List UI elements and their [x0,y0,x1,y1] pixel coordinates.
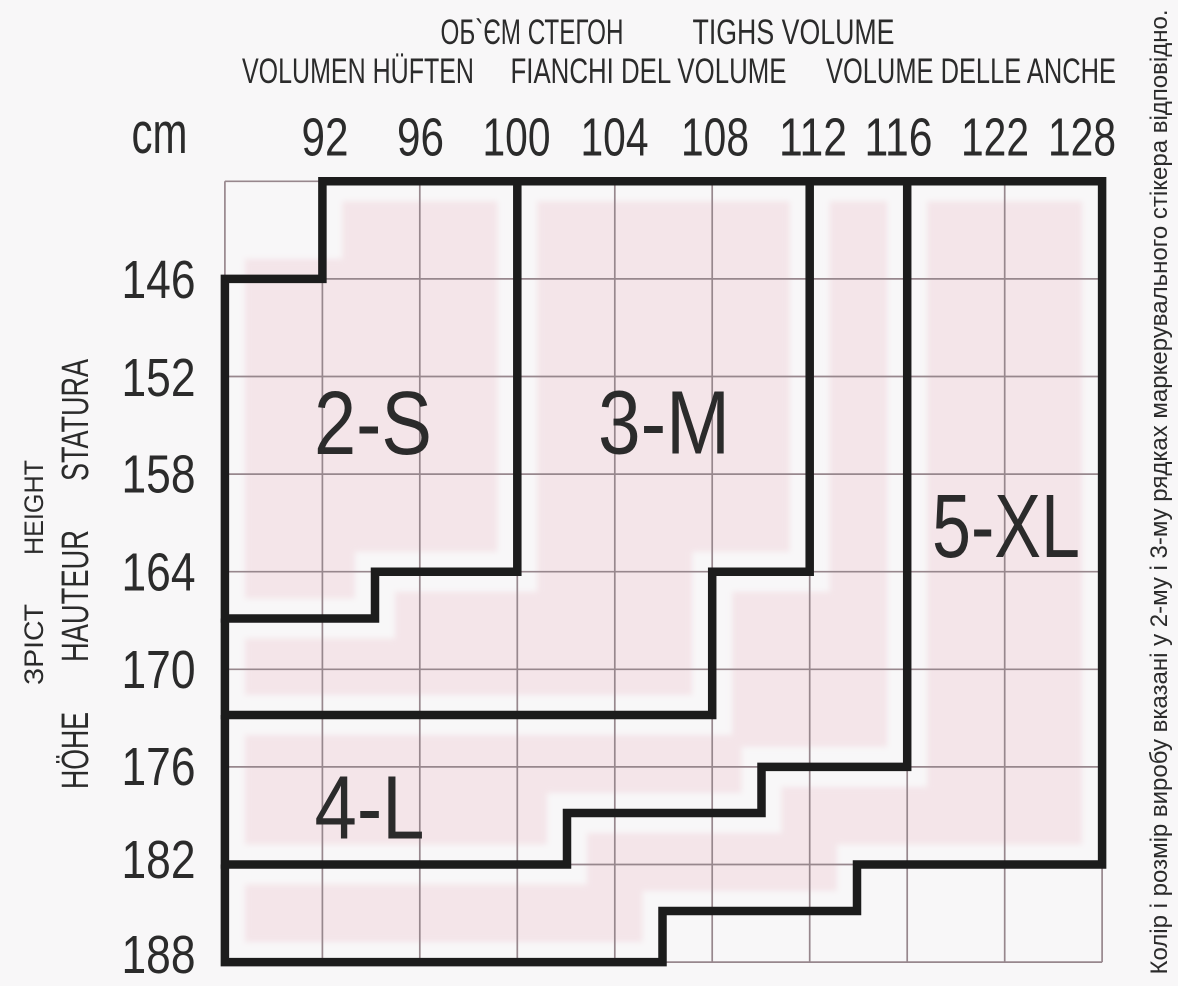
svg-text:FIANCHI DEL VOLUME: FIANCHI DEL VOLUME [511,52,787,91]
svg-text:Колір і розмір виробу вказані: Колір і розмір виробу вказані у 2-му і 3… [1146,10,1173,975]
svg-text:122: 122 [961,108,1029,168]
svg-text:176: 176 [122,737,196,797]
svg-text:ОБ`ЄМ СТЕГОН: ОБ`ЄМ СТЕГОН [441,13,624,52]
svg-text:HÖHE: HÖHE [55,712,97,789]
svg-text:128: 128 [1048,108,1116,168]
svg-text:VOLUME DELLE ANCHE: VOLUME DELLE ANCHE [826,52,1116,91]
svg-text:188: 188 [122,925,196,985]
svg-text:HEIGHT: HEIGHT [19,460,49,555]
svg-text:3-M: 3-M [598,374,730,474]
svg-text:182: 182 [122,830,196,890]
svg-text:HAUTEUR: HAUTEUR [55,530,97,662]
svg-text:STATURA: STATURA [55,359,97,481]
svg-text:108: 108 [681,108,749,168]
svg-text:92: 92 [302,108,349,168]
svg-text:152: 152 [122,348,196,408]
svg-text:116: 116 [865,108,933,168]
svg-text:VOLUMEN HÜFTEN: VOLUMEN HÜFTEN [242,52,474,91]
svg-text:4-L: 4-L [315,759,425,859]
svg-text:cm: cm [132,101,188,166]
svg-text:146: 146 [122,250,196,310]
svg-text:ЗРІСТ: ЗРІСТ [19,604,49,685]
svg-text:100: 100 [483,108,551,168]
svg-text:104: 104 [581,108,649,168]
svg-text:TIGHS VOLUME: TIGHS VOLUME [693,13,895,52]
svg-text:170: 170 [122,640,196,700]
svg-text:5-XL: 5-XL [932,477,1080,577]
svg-text:164: 164 [122,543,196,603]
svg-text:112: 112 [779,108,847,168]
svg-text:2-S: 2-S [314,374,432,474]
svg-text:158: 158 [122,444,196,504]
svg-text:96: 96 [397,108,444,168]
